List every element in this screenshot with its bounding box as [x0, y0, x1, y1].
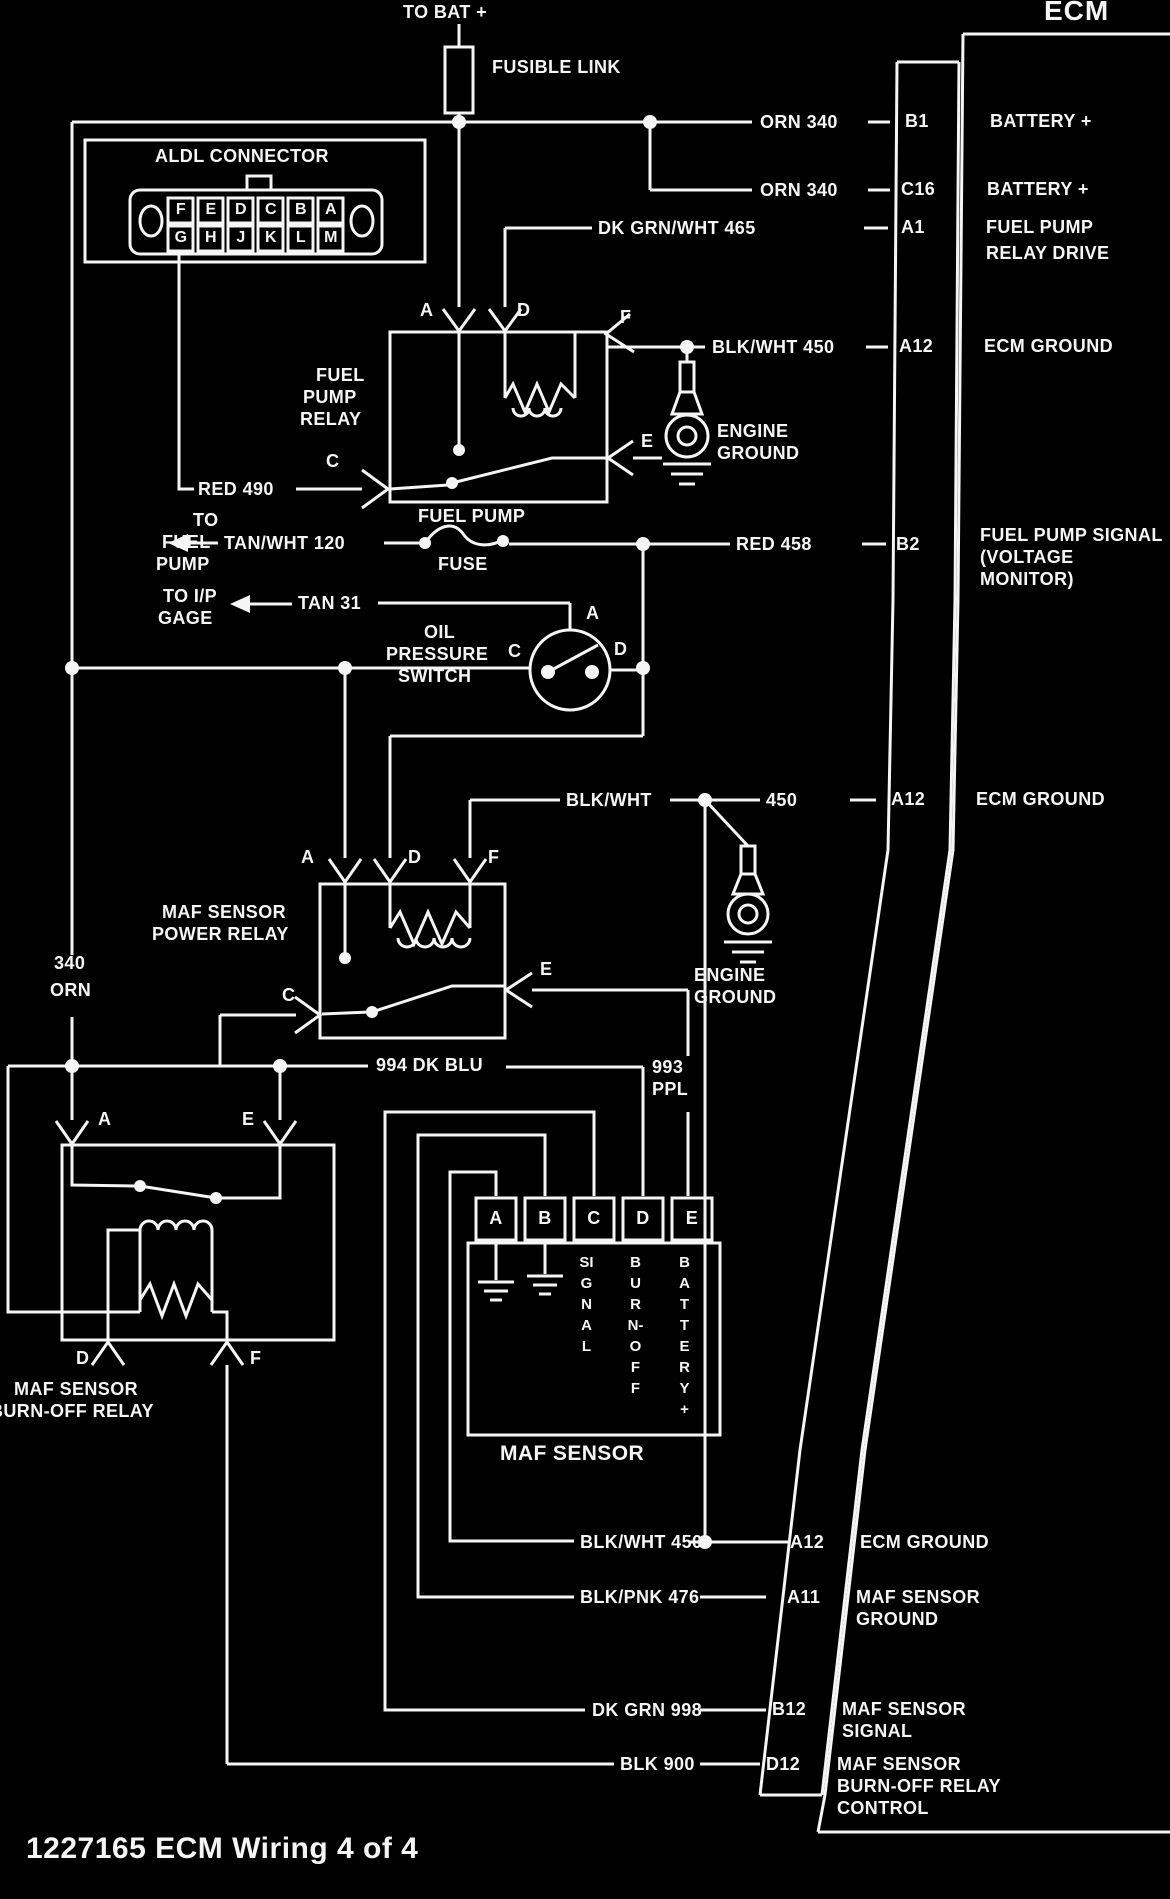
ecm-label-battery1: BATTERY +	[990, 110, 1092, 132]
ecm-label-burnoff2: BURN-OFF RELAY	[837, 1775, 1001, 1797]
ecm-pin-a12-2: A12	[891, 788, 925, 810]
maf-pin-d: D	[636, 1207, 649, 1229]
bo-term-a: A	[98, 1108, 111, 1130]
to-fuel-pump-3: PUMP	[156, 553, 210, 575]
fp-relay-label-3: RELAY	[300, 408, 361, 430]
maf-fn-signal: SIGNAL	[578, 1252, 595, 1357]
ecm-label-mafsignal1: MAF SENSOR	[842, 1698, 966, 1720]
ecm-label-burnoff3: CONTROL	[837, 1797, 929, 1819]
aldl-pin-e: E	[205, 199, 216, 221]
wire-label-blkwht: BLK/WHT	[566, 789, 652, 811]
wire-994-dkblu	[8, 1015, 643, 1312]
fp-term-e: E	[641, 430, 653, 452]
wire-blkwht-450-mid	[470, 793, 876, 1542]
engine-ground-2	[705, 800, 772, 962]
pr-term-d: D	[408, 846, 421, 868]
aldl-pin-k: K	[265, 227, 277, 249]
maf-power-relay	[295, 668, 643, 1038]
ops-label-1: OIL	[424, 621, 455, 643]
fp-relay-label-1: FUEL	[316, 364, 365, 386]
ecm-pin-d12: D12	[766, 1753, 800, 1775]
maf-fn-battery: BATTERY+	[676, 1252, 693, 1420]
bo-term-d: D	[76, 1347, 89, 1369]
maf-fn-burnoff: BURN-OFF	[627, 1252, 644, 1399]
ecm-label-voltage: (VOLTAGE	[980, 546, 1074, 568]
ecm-label-ground2: ECM GROUND	[976, 788, 1105, 810]
burnoff-relay-label-1: MAF SENSOR	[14, 1378, 138, 1400]
bo-term-e: E	[242, 1108, 254, 1130]
aldl-pin-h: H	[205, 227, 217, 249]
engine-ground2-label2: GROUND	[694, 986, 776, 1008]
ops-term-d: D	[614, 638, 627, 660]
wire-label-dkgrnwht465: DK GRN/WHT 465	[598, 217, 756, 239]
fp-term-a: A	[420, 299, 433, 321]
diagram-caption: 1227165 ECM Wiring 4 of 4	[26, 1838, 418, 1860]
fuse-label-2: FUSE	[438, 553, 488, 575]
to-fuel-pump-1: TO	[193, 509, 218, 531]
to-ip-gage-1: TO I/P	[163, 585, 217, 607]
aldl-pin-c: C	[265, 199, 277, 221]
ecm-label-mafground1: MAF SENSOR	[856, 1586, 980, 1608]
aldl-pin-b: B	[295, 199, 307, 221]
bo-term-f: F	[250, 1347, 261, 1369]
ecm-pin-a11: A11	[787, 1586, 820, 1608]
ecm-label-fuelpump: FUEL PUMP	[986, 216, 1093, 238]
ecm-pin-c16: C16	[901, 178, 935, 200]
fusible-link	[445, 24, 473, 122]
wire-label-994: 994 DK BLU	[376, 1054, 483, 1076]
fusible-link-label: FUSIBLE LINK	[492, 56, 621, 78]
ecm-label-mafground2: GROUND	[856, 1608, 938, 1630]
wire-label-orn340-2: ORN 340	[760, 179, 838, 201]
wire-label-dkgrn998: DK GRN 998	[592, 1699, 702, 1721]
ecm-label-battery2: BATTERY +	[987, 178, 1089, 200]
pr-term-c: C	[282, 984, 295, 1006]
pr-term-e: E	[540, 958, 552, 980]
wire-label-red490: RED 490	[198, 478, 274, 500]
aldl-pin-g: G	[175, 227, 188, 249]
ecm-label-mafsignal2: SIGNAL	[842, 1720, 912, 1742]
wire-dkgrnwht-465	[505, 228, 888, 307]
to-fuel-pump-2: FUEL	[162, 531, 211, 553]
ecm-pin-a12-1: A12	[899, 335, 933, 357]
aldl-pin-l: L	[296, 227, 306, 249]
fuel-pump-fuse	[168, 526, 886, 736]
ecm-label-burnoff1: MAF SENSOR	[837, 1753, 961, 1775]
power-relay-label-1: MAF SENSOR	[162, 901, 286, 923]
wire-label-340: 340	[54, 952, 85, 974]
ecm-label-relaydrive: RELAY DRIVE	[986, 242, 1109, 264]
ecm-label-fpsignal: FUEL PUMP SIGNAL	[980, 524, 1163, 546]
fp-term-c: C	[326, 450, 339, 472]
wire-label-993b: PPL	[652, 1078, 688, 1100]
wire-label-blkwht450-2: BLK/WHT 450	[580, 1531, 702, 1553]
ops-term-a: A	[586, 602, 599, 624]
wire-label-orn340-1: ORN 340	[760, 111, 838, 133]
aldl-pin-j: J	[236, 227, 245, 249]
maf-burnoff-relay	[56, 1121, 334, 1764]
to-bat-label: TO BAT +	[403, 1, 487, 23]
diagram-lines	[0, 0, 1170, 1899]
ecm-label-monitor: MONITOR)	[980, 568, 1074, 590]
wire-label-tan31: TAN 31	[298, 592, 361, 614]
ecm-label-ground3: ECM GROUND	[860, 1531, 989, 1553]
engine-ground1-label2: GROUND	[717, 442, 799, 464]
wire-label-993a: 993	[652, 1056, 683, 1078]
aldl-pin-m: M	[324, 227, 338, 249]
aldl-title: ALDL CONNECTOR	[155, 145, 329, 167]
fp-term-f: F	[620, 306, 631, 328]
wire-label-450: 450	[766, 789, 797, 811]
ecm-title: ECM	[1044, 0, 1109, 22]
wire-label-orn: ORN	[50, 979, 91, 1001]
ops-label-2: PRESSURE	[386, 643, 488, 665]
fp-relay-label-2: PUMP	[303, 386, 357, 408]
ecm-pin-b2: B2	[896, 533, 920, 555]
maf-sensor-title: MAF SENSOR	[500, 1443, 644, 1465]
wire-label-blk900: BLK 900	[620, 1753, 695, 1775]
aldl-pin-d: D	[235, 199, 247, 221]
maf-pin-a: A	[489, 1207, 502, 1229]
pr-term-a: A	[301, 846, 314, 868]
ecm-pin-b12: B12	[772, 1698, 806, 1720]
wire-label-red458: RED 458	[736, 533, 812, 555]
wire-label-blkwht450-1: BLK/WHT 450	[712, 336, 834, 358]
ops-term-c: C	[508, 640, 521, 662]
ecm-pin-a12-3: A12	[790, 1531, 824, 1553]
engine-ground-1	[663, 347, 711, 484]
wire-label-blkpnk476: BLK/PNK 476	[580, 1586, 699, 1608]
ecm-pin-b1: B1	[905, 110, 929, 132]
aldl-pin-f: F	[176, 199, 186, 221]
maf-pin-b: B	[538, 1207, 551, 1229]
engine-ground1-label1: ENGINE	[717, 420, 788, 442]
power-relay-label-2: POWER RELAY	[152, 923, 289, 945]
fuse-label-1: FUEL PUMP	[418, 505, 525, 527]
burnoff-relay-label-2: BURN-OFF RELAY	[0, 1400, 154, 1422]
maf-pin-c: C	[587, 1207, 600, 1229]
wire-label-tanwht120: TAN/WHT 120	[224, 532, 345, 554]
ecm-label-ground1: ECM GROUND	[984, 335, 1113, 357]
aldl-pin-a: A	[325, 199, 337, 221]
maf-pin-e: E	[686, 1207, 698, 1229]
fp-term-d: D	[517, 299, 530, 321]
engine-ground2-label1: ENGINE	[694, 964, 765, 986]
ecm-box	[818, 34, 1170, 1832]
wire-maf-b-blkpnk476	[418, 1135, 766, 1597]
wiring-diagram: TO BAT + FUSIBLE LINK ECM B1 BATTERY + C…	[0, 0, 1170, 1899]
pr-term-f: F	[488, 846, 499, 868]
fuel-pump-relay	[362, 122, 662, 508]
ops-label-3: SWITCH	[398, 665, 471, 687]
ecm-pin-a1: A1	[901, 216, 925, 238]
to-ip-gage-2: GAGE	[158, 607, 213, 629]
